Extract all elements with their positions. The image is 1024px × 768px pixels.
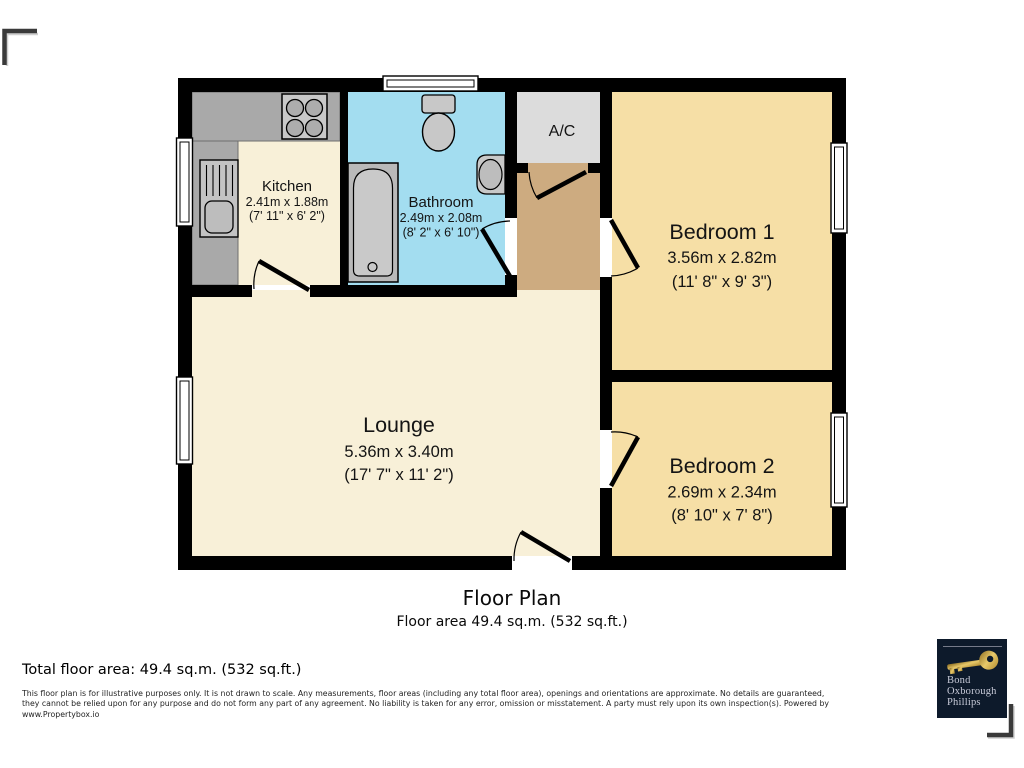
wall-kitchen-bathroom [340, 92, 348, 285]
disclaimer-line: This floor plan is for illustrative purp… [22, 689, 829, 699]
bedroom1-dim-imperial: (11' 8" x 9' 3") [672, 273, 772, 291]
bedroom1-window [831, 143, 847, 233]
toilet-icon [422, 95, 455, 151]
bathroom-dim-metric: 2.49m x 2.08m [400, 211, 483, 225]
ac-closet-label: A/C [549, 123, 576, 140]
floor-plan-canvas: Kitchen 2.41m x 1.88m (7' 11" x 6' 2") B… [0, 0, 1024, 768]
lounge-window [177, 377, 193, 464]
bedroom2-window [831, 413, 847, 507]
bedroom2-label: Bedroom 2 [669, 454, 774, 478]
key-icon [944, 650, 1000, 676]
lounge-label: Lounge [363, 413, 435, 437]
wall-kitchen-lounge-left [178, 285, 252, 297]
lounge-dim-imperial: (17' 7" x 11' 2") [344, 466, 453, 484]
disclaimer-line: they cannot be relied upon for any purpo… [22, 699, 829, 709]
logo-text: Bond Oxborough Phillips [947, 675, 997, 709]
kitchen-label: Kitchen [262, 178, 312, 195]
corner-mark-top-left-shadow [7, 34, 38, 66]
wall-bathroom-hall-top [505, 92, 517, 218]
wall-outer-top [178, 78, 846, 92]
bedroom2-dim-metric: 2.69m x 2.34m [667, 484, 776, 502]
kitchen-window [177, 138, 193, 226]
bedroom1-dim-metric: 3.56m x 2.82m [667, 249, 776, 267]
wall-lounge-bedrooms-mid [600, 277, 612, 430]
wall-outer-bottom-right [572, 556, 846, 570]
lounge-dim-metric: 5.36m x 3.40m [344, 443, 453, 461]
page-title: Floor Plan [0, 586, 1024, 610]
logo-line: Bond [947, 675, 997, 686]
bathroom-window [383, 76, 478, 91]
agency-logo: Bond Oxborough Phillips [937, 639, 1007, 718]
wall-bathroom-lounge [310, 285, 517, 297]
wall-lounge-bedroom2-bottom [600, 488, 612, 556]
disclaimer: This floor plan is for illustrative purp… [22, 689, 829, 720]
sink-icon [200, 160, 238, 237]
logo-line: Oxborough [947, 686, 997, 697]
wall-ac-right [588, 163, 600, 173]
wall-ac-left [517, 163, 528, 173]
hallway-floor [517, 163, 600, 297]
bathtub-icon [348, 163, 398, 282]
bedroom1-label: Bedroom 1 [669, 220, 774, 244]
kitchen-dim-imperial: (7' 11" x 6' 2") [249, 209, 325, 223]
disclaimer-line: www.Propertybox.io [22, 710, 829, 720]
bathroom-label: Bathroom [408, 194, 473, 211]
logo-line: Phillips [947, 697, 997, 708]
kitchen-dim-metric: 2.41m x 1.88m [246, 195, 329, 209]
total-floor-area: Total floor area: 49.4 sq.m. (532 sq.ft.… [22, 662, 301, 678]
wall-hall-bedroom1-top [600, 92, 612, 218]
wall-outer-bottom-left [178, 556, 512, 570]
bathroom-dim-imperial: (8' 2" x 6' 10") [403, 226, 480, 240]
stove-icon [282, 94, 327, 139]
corner-mark-top-left [5, 31, 38, 65]
logo-divider [943, 646, 1002, 647]
wall-bedroom-divider [612, 370, 832, 382]
basin-icon [477, 155, 505, 194]
page-subtitle: Floor area 49.4 sq.m. (532 sq.ft.) [0, 614, 1024, 630]
bedroom2-dim-imperial: (8' 10" x 7' 8") [671, 507, 772, 525]
